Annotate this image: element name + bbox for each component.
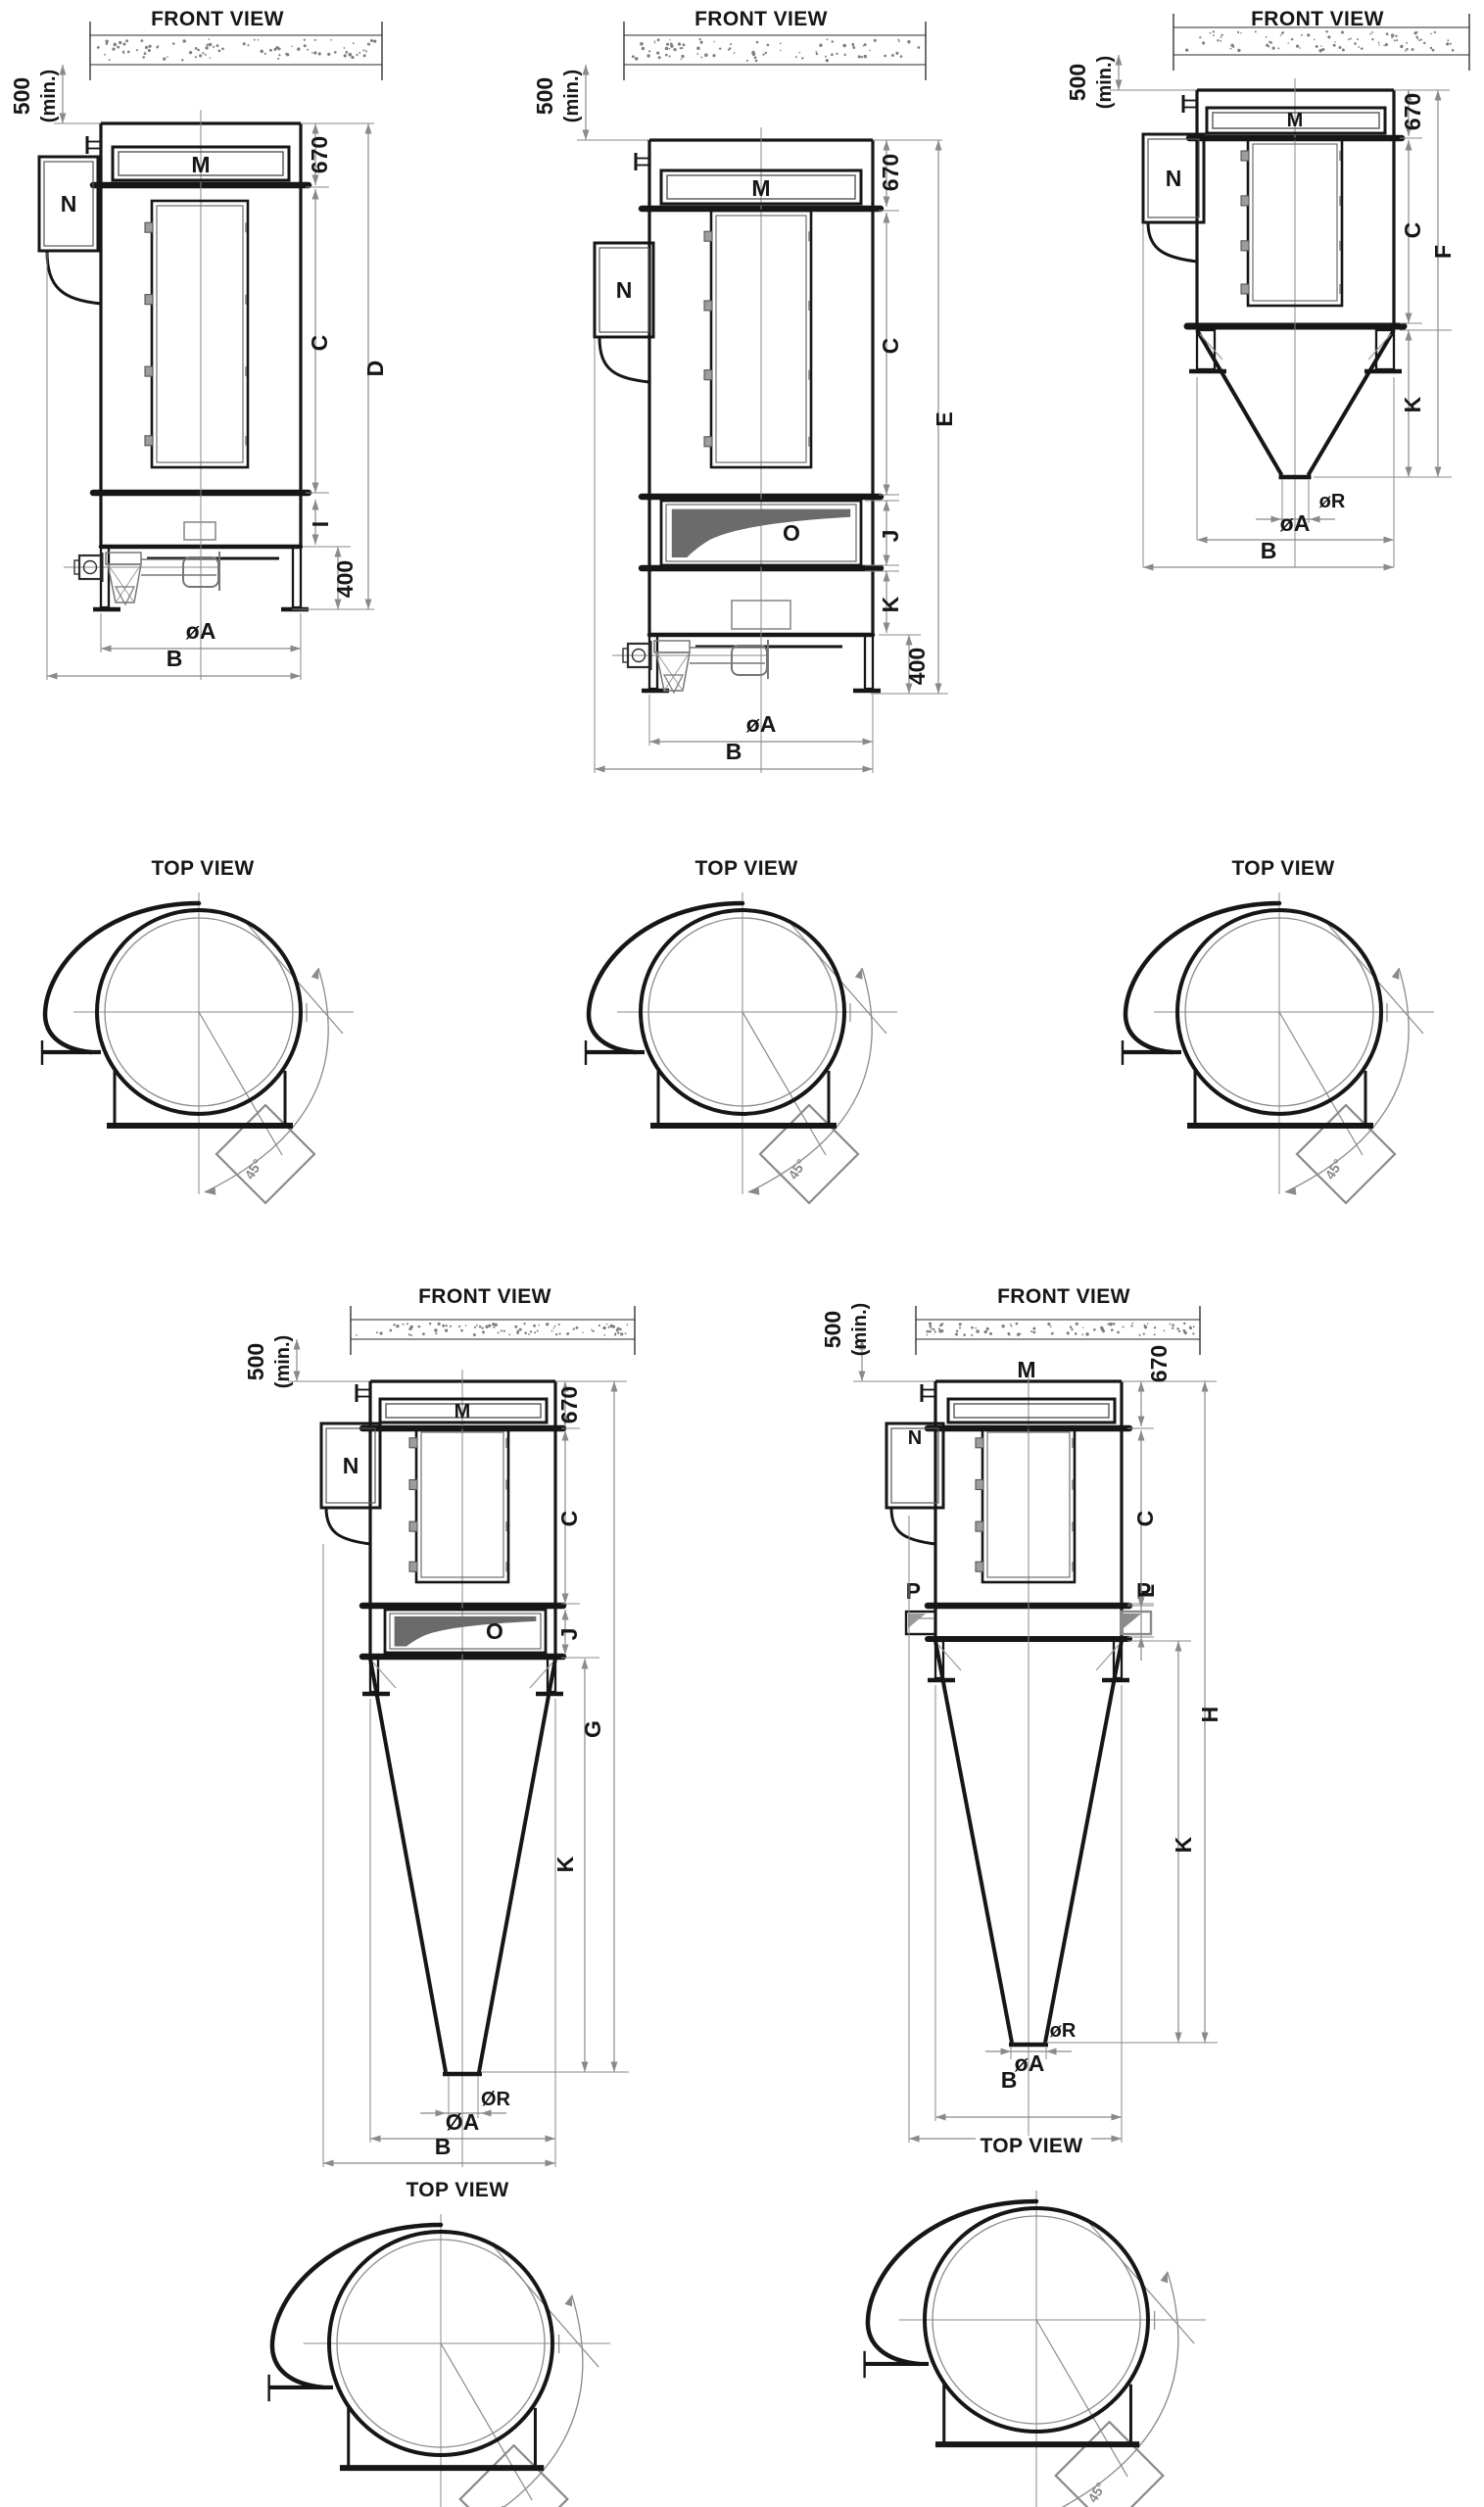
dim-dia-a: øA — [1280, 510, 1311, 536]
dim-g: G — [580, 1720, 605, 1738]
side-box: N — [39, 157, 101, 304]
collector-body — [922, 1381, 1129, 1639]
clearance-dimension: 500(min.) — [1065, 55, 1197, 109]
inlet-scroll — [42, 903, 199, 1065]
dim-k: K — [1400, 396, 1425, 412]
box-n-label: N — [1166, 166, 1182, 191]
box-n-label: N — [343, 1453, 359, 1478]
top-view-4: TOP VIEW45° — [269, 2179, 611, 2507]
side-box: N — [1143, 134, 1204, 262]
dim-c: C — [1400, 222, 1425, 239]
ceiling-slab — [624, 22, 926, 80]
clearance-dimension: 500(min.) — [532, 65, 649, 140]
inlet-scroll — [1123, 903, 1279, 1065]
dim-j: J — [878, 530, 903, 543]
support-bracket — [340, 2408, 544, 2468]
top-view-1: TOP VIEW45° — [42, 857, 354, 1203]
port-m-label: M — [191, 152, 210, 177]
dimensions: 670CJKGØRØAB — [323, 1381, 618, 2167]
front-view-4: FRONT VIEW500(min.)MNO670CJKGØRØAB — [243, 1285, 635, 2167]
dim-dia-r: ØR — [481, 2089, 511, 2110]
port-m-label: M — [1287, 110, 1304, 131]
dim-dia-r: øR — [1319, 491, 1346, 512]
front-view-title: FRONT VIEW — [418, 1285, 551, 1308]
clearance-qualifier: (min.) — [272, 1335, 294, 1388]
trough-o-label: O — [486, 1618, 503, 1644]
front-view-2: FRONT VIEW500(min.)MNO670CJK400EøAB — [532, 8, 957, 773]
top-view-3: TOP VIEW45° — [1123, 857, 1434, 1203]
rotation-construction: 45° — [617, 892, 897, 1203]
inlet-scroll — [269, 2225, 441, 2401]
top-view-2: TOP VIEW45° — [586, 857, 897, 1203]
box-n-label: N — [908, 1427, 922, 1449]
port-m-label: M — [1017, 1357, 1035, 1382]
top-port: M — [661, 170, 861, 204]
dim-i: I — [308, 521, 333, 527]
front-view-1: FRONT VIEW500(min.)MN670CI400DøAB — [9, 8, 388, 680]
top-port: M — [948, 1357, 1115, 1422]
clearance-value: 500 — [9, 77, 34, 115]
access-door — [145, 201, 248, 467]
dimension-extensions — [595, 140, 948, 773]
clearance-qualifier: (min.) — [561, 70, 583, 122]
dim-inlet-670: 670 — [307, 136, 332, 173]
top-view-title: TOP VIEW — [694, 857, 797, 880]
clearance-qualifier: (min.) — [849, 1303, 871, 1356]
dim-k: K — [1171, 1836, 1196, 1853]
screw-conveyor — [612, 640, 769, 693]
dim-h: H — [1197, 1707, 1222, 1723]
collector-body — [87, 123, 309, 558]
access-door — [704, 211, 811, 467]
clearance-value: 500 — [820, 1311, 845, 1348]
top-view-title: TOP VIEW — [1231, 857, 1334, 880]
dim-j: J — [556, 1628, 582, 1641]
dim-b: B — [435, 2134, 452, 2159]
dust-collector-dimension-sheet: FRONT VIEW500(min.)MN670CI400DøABFRONT V… — [0, 0, 1484, 2507]
dim-b: B — [1261, 538, 1277, 563]
top-port: M — [113, 147, 289, 180]
dim-inlet-670: 670 — [878, 154, 903, 191]
top-view-5: TOP VIEW45° — [865, 2135, 1207, 2507]
dim-b: B — [1001, 2067, 1018, 2093]
dim-dia-a: øA — [1015, 2050, 1045, 2076]
dim-e: E — [932, 411, 957, 426]
dim-dia-a: øA — [746, 711, 777, 737]
dim-400: 400 — [332, 560, 358, 598]
top-port: M — [1207, 108, 1385, 133]
clearance-dimension: 500(min.) — [9, 65, 101, 123]
outlet-angle-label: 45° — [1321, 1156, 1346, 1181]
clearance-dimension: 500(min.) — [820, 1303, 935, 1381]
dim-b: B — [726, 739, 742, 764]
dim-k: K — [552, 1856, 578, 1872]
outlet-angle-label: 45° — [241, 1156, 265, 1181]
inlet-scroll — [586, 903, 742, 1065]
port-p-left-label: P — [906, 1578, 921, 1604]
top-port: M — [380, 1399, 547, 1422]
ceiling-slab — [90, 22, 382, 80]
dim-c: C — [1132, 1511, 1158, 1527]
access-door — [976, 1427, 1075, 1582]
dim-k: K — [878, 596, 903, 612]
dimensions: 670CKFøRøAB — [1143, 90, 1456, 571]
dimension-extensions — [47, 123, 374, 680]
dim-d: D — [362, 361, 388, 377]
dim-c: C — [878, 338, 903, 355]
dim-l: L — [1133, 1584, 1159, 1598]
port-m-label: M — [751, 175, 770, 201]
access-door — [409, 1427, 508, 1582]
trough-o-label: O — [783, 520, 800, 546]
dim-inlet-670: 670 — [556, 1386, 582, 1423]
technical-drawing-canvas: FRONT VIEW500(min.)MN670CI400DøABFRONT V… — [0, 0, 1484, 2507]
clearance-value: 500 — [532, 77, 557, 115]
dim-inlet-670: 670 — [1400, 93, 1425, 130]
support-bracket — [935, 2385, 1139, 2444]
dim-f: F — [1430, 245, 1456, 259]
rotation-construction: 45° — [1154, 892, 1434, 1203]
clearance-qualifier: (min.) — [1094, 56, 1116, 109]
dim-dia-r: øR — [1050, 2020, 1077, 2042]
front-view-5: FRONT VIEW500(min.)MNPP670CLKHøRøAB — [820, 1285, 1222, 2143]
top-view-title: TOP VIEW — [151, 857, 254, 880]
dim-inlet-670: 670 — [1146, 1345, 1172, 1382]
rotation-construction: 45° — [899, 2191, 1206, 2507]
dim-c: C — [307, 335, 332, 352]
front-view-3: FRONT VIEW500(min.)MN670CKFøRøAB — [1065, 8, 1469, 571]
rotation-construction: 45° — [73, 892, 354, 1203]
box-n-label: N — [61, 191, 77, 217]
port-m-label: M — [455, 1401, 471, 1422]
box-n-label: N — [616, 277, 633, 303]
dim-dia-a: øA — [186, 618, 216, 644]
dim-400: 400 — [904, 648, 930, 685]
screw-conveyor — [64, 552, 220, 604]
dim-c: C — [556, 1511, 582, 1527]
clearance-value: 500 — [243, 1343, 268, 1380]
outlet-angle-label: 45° — [1084, 2480, 1109, 2505]
outlet-angle-label: 45° — [785, 1156, 809, 1181]
front-view-title: FRONT VIEW — [997, 1285, 1130, 1308]
base-outlet-mark — [184, 522, 215, 540]
clearance-value: 500 — [1065, 64, 1090, 101]
side-box: N — [595, 243, 653, 382]
access-door — [1241, 139, 1342, 306]
front-view-title: FRONT VIEW — [694, 8, 828, 30]
clearance-qualifier: (min.) — [38, 70, 60, 122]
top-view-title: TOP VIEW — [980, 2135, 1082, 2157]
top-view-title: TOP VIEW — [406, 2179, 508, 2201]
ceiling-slab — [351, 1306, 635, 1355]
front-view-title: FRONT VIEW — [151, 8, 284, 30]
screw-trough: O — [385, 1610, 546, 1653]
dim-dia-a: ØA — [446, 2109, 480, 2135]
inlet-scroll — [865, 2201, 1036, 2378]
dim-b: B — [167, 646, 183, 671]
